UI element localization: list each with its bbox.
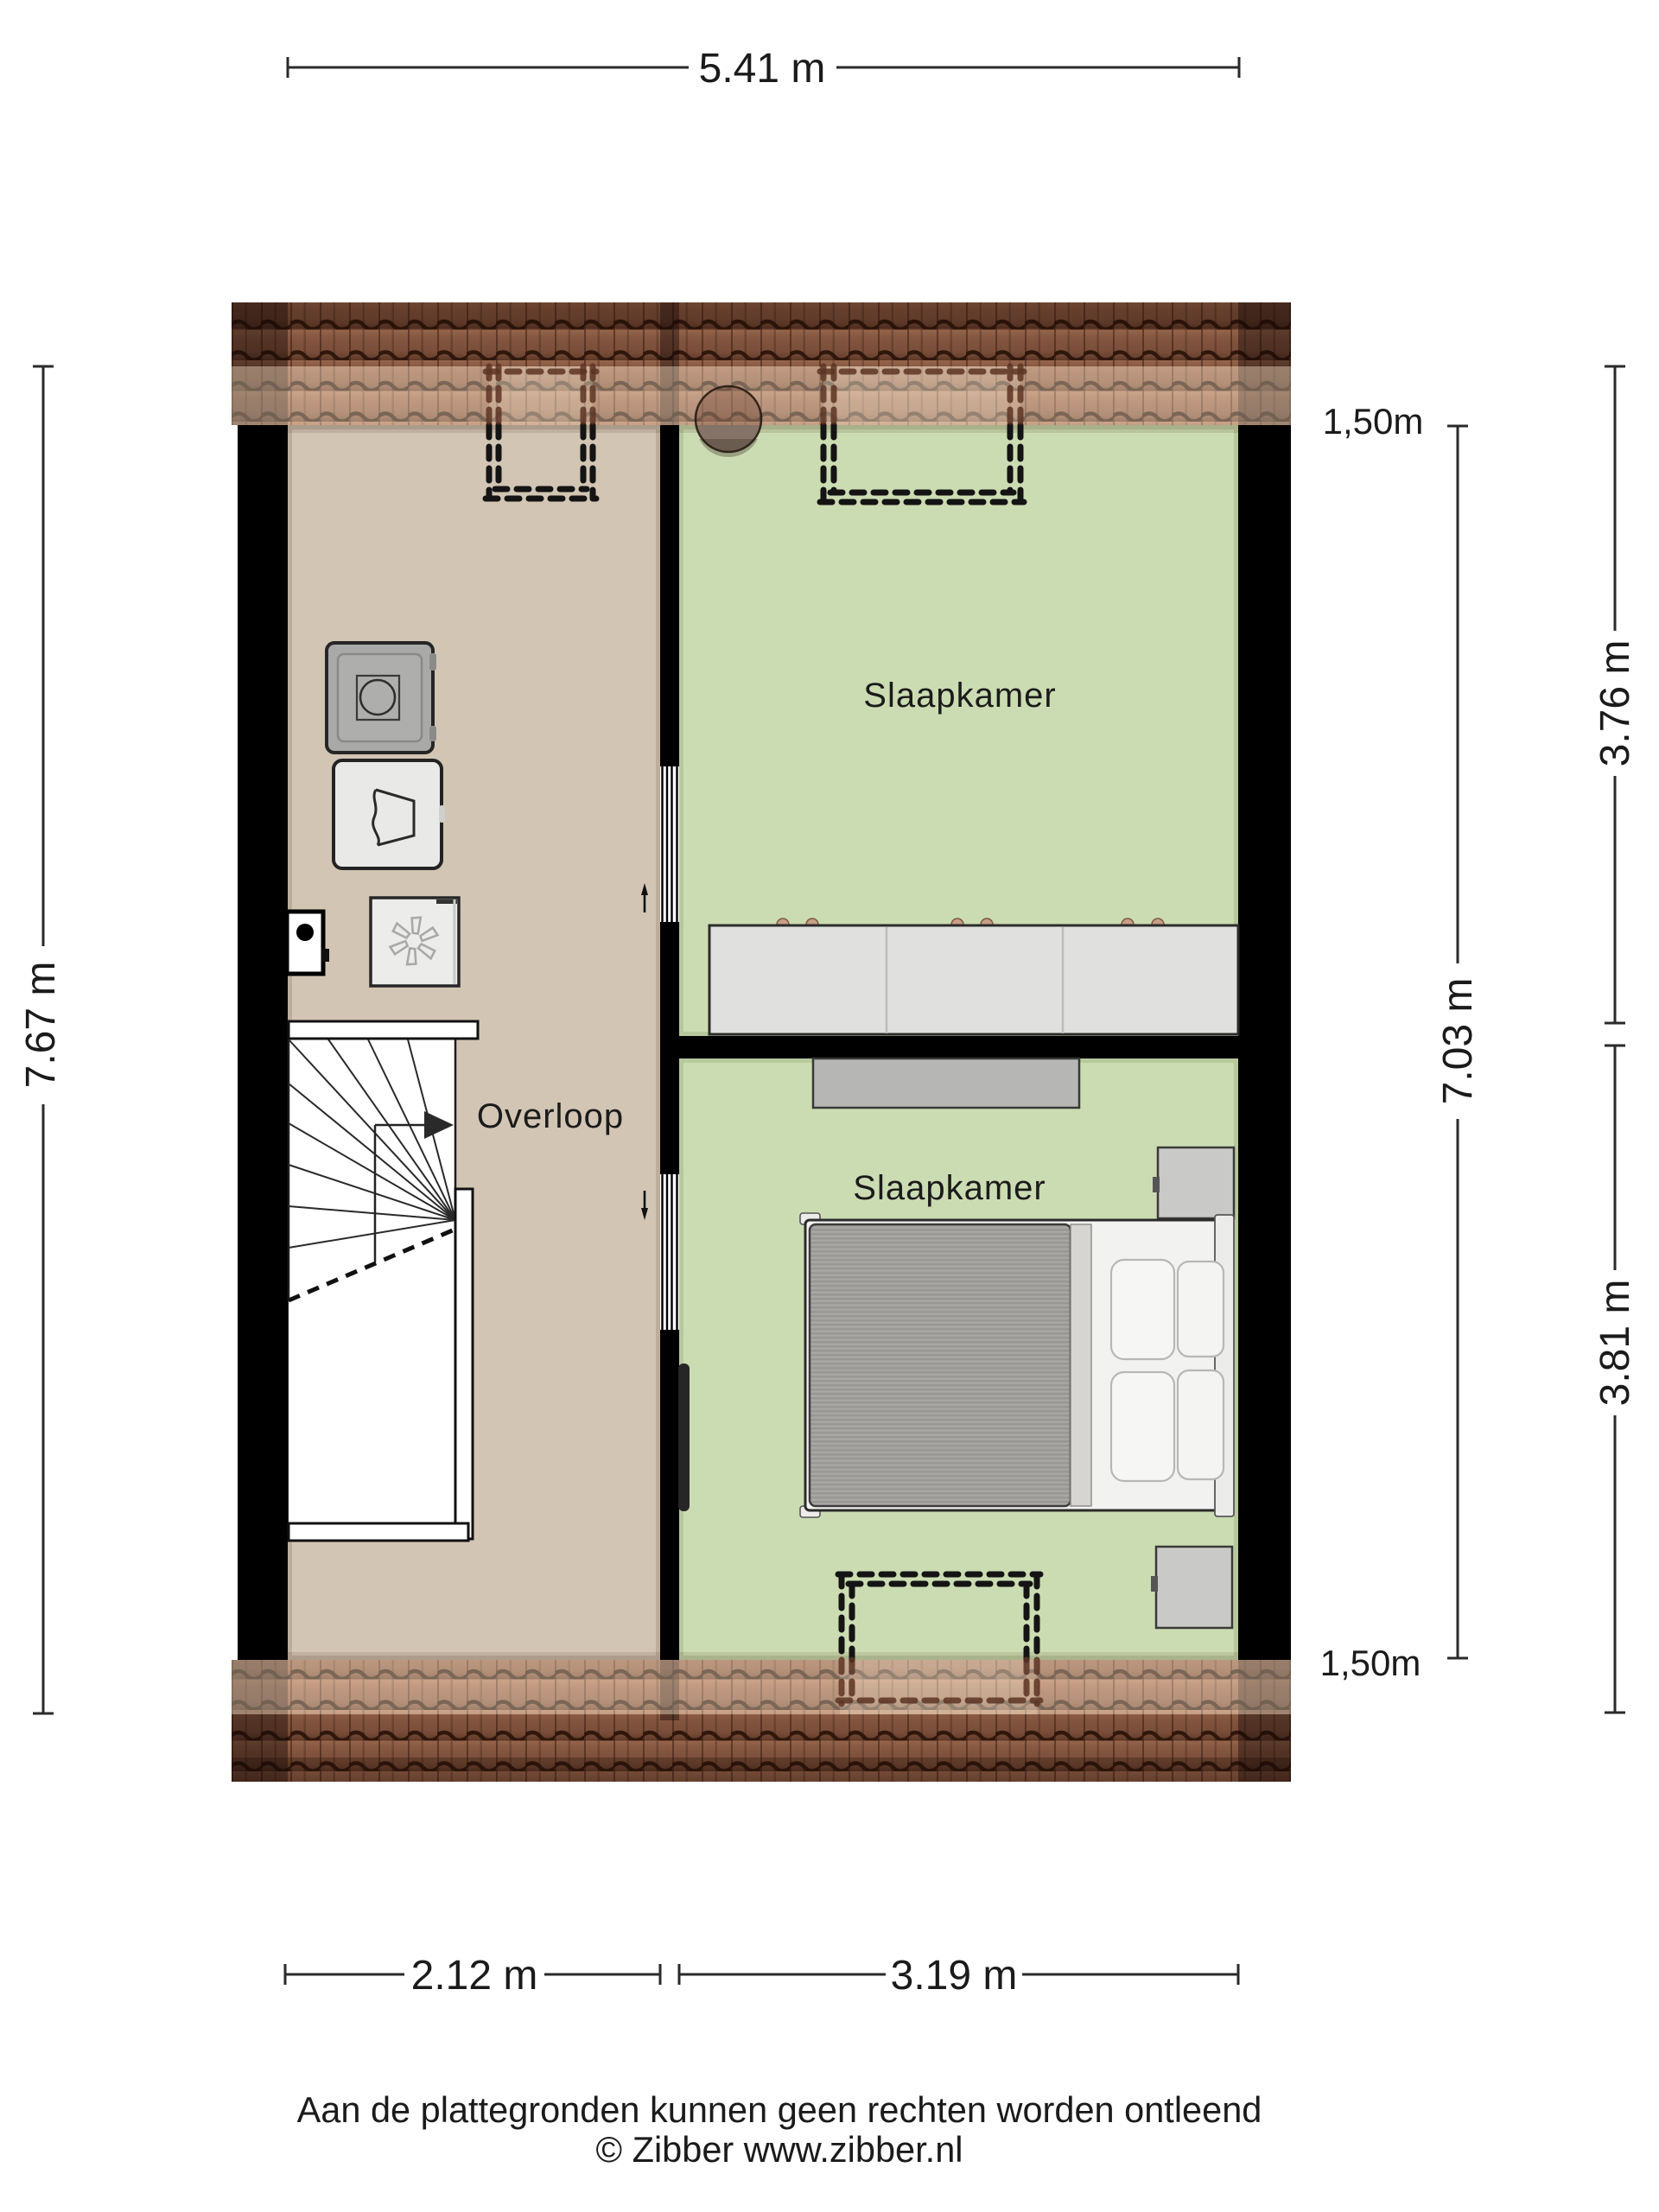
svg-text:3.81 m: 3.81 m	[1592, 1280, 1638, 1407]
svg-text:7.67 m: 7.67 m	[18, 962, 64, 1089]
svg-text:2.12 m: 2.12 m	[411, 1953, 538, 1999]
svg-text:Aan de plattegronden kunnen ge: Aan de plattegronden kunnen geen rechten…	[297, 2089, 1262, 2130]
svg-text:Slaapkamer: Slaapkamer	[853, 1169, 1046, 1207]
svg-text:© Zibber www.zibber.nl: © Zibber www.zibber.nl	[596, 2129, 963, 2170]
svg-text:1,50m: 1,50m	[1323, 401, 1424, 442]
svg-text:3.19 m: 3.19 m	[891, 1953, 1018, 1999]
svg-text:1,50m: 1,50m	[1320, 1643, 1421, 1683]
svg-text:5.41 m: 5.41 m	[699, 46, 826, 92]
svg-text:Slaapkamer: Slaapkamer	[863, 677, 1056, 715]
svg-text:3.76 m: 3.76 m	[1592, 640, 1638, 767]
svg-text:7.03 m: 7.03 m	[1435, 978, 1481, 1105]
svg-text:Overloop: Overloop	[477, 1097, 624, 1135]
